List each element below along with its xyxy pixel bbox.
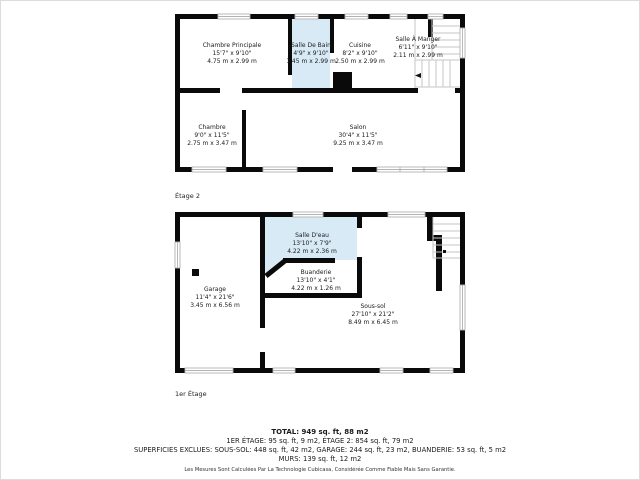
summary-block: TOTAL: 949 sq. ft, 88 m2 1ER ÉTAGE: 95 s… bbox=[134, 428, 506, 473]
label-salon-imperial: 30'4" x 11'5" bbox=[338, 132, 377, 139]
label-salle-deau-metric: 4.22 m x 2.36 m bbox=[287, 248, 337, 255]
staircase-1er-etage bbox=[433, 217, 460, 258]
window bbox=[192, 167, 226, 172]
floor2-label: Étage 2 bbox=[175, 191, 200, 200]
label-garage-imperial: 11'4" x 21'6" bbox=[195, 294, 234, 301]
label-cuisine-name: Cuisine bbox=[349, 42, 371, 49]
window bbox=[388, 212, 425, 217]
label-salle-a-manger-name: Salle À Manger bbox=[395, 36, 441, 43]
label-cuisine-imperial: 8'2" x 9'10" bbox=[342, 50, 378, 57]
label-chambre-principale-imperial: 15'7" x 9'10" bbox=[212, 50, 251, 57]
garage-door bbox=[185, 368, 233, 373]
stair-direction-arrow bbox=[415, 73, 421, 78]
label-buanderie-name: Buanderie bbox=[301, 269, 332, 276]
window bbox=[390, 14, 407, 19]
label-salle-de-bain-name: Salle De Bain bbox=[291, 42, 331, 49]
label-sous-sol-name: Sous-sol bbox=[360, 303, 385, 310]
plan-etage2: Chambre Principale 15'7" x 9'10" 4.75 m … bbox=[175, 14, 465, 200]
summary-murs: MURS: 139 sq. ft, 12 m2 bbox=[279, 455, 362, 463]
window bbox=[263, 167, 297, 172]
window bbox=[428, 14, 443, 19]
window bbox=[218, 14, 250, 19]
label-chambre-name: Chambre bbox=[198, 124, 226, 131]
window bbox=[295, 14, 318, 19]
label-salle-a-manger-imperial: 6'11" x 9'10" bbox=[398, 44, 437, 51]
window bbox=[380, 368, 403, 373]
label-salle-deau-imperial: 13'10" x 7'9" bbox=[292, 240, 331, 247]
label-chambre-principale-name: Chambre Principale bbox=[203, 42, 262, 49]
floorplan-canvas: Chambre Principale 15'7" x 9'10" 4.75 m … bbox=[0, 0, 640, 480]
door-opening bbox=[333, 167, 352, 172]
summary-total: TOTAL: 949 sq. ft, 88 m2 bbox=[271, 428, 368, 436]
floor1-label: 1er Étage bbox=[175, 389, 207, 398]
window bbox=[460, 285, 465, 330]
summary-etages: 1ER ÉTAGE: 95 sq. ft, 9 m2, ÉTAGE 2: 854… bbox=[226, 436, 413, 445]
label-garage-name: Garage bbox=[204, 286, 226, 293]
labels-1er-etage: Salle D'eau 13'10" x 7'9" 4.22 m x 2.36 … bbox=[190, 232, 398, 326]
label-sous-sol-imperial: 27'10" x 21'2" bbox=[352, 311, 395, 318]
label-buanderie-metric: 4.22 m x 1.26 m bbox=[291, 285, 341, 292]
window bbox=[430, 368, 453, 373]
window bbox=[175, 242, 180, 268]
label-chambre-metric: 2.75 m x 3.47 m bbox=[187, 140, 237, 147]
window bbox=[273, 368, 295, 373]
label-salle-de-bain-imperial: 4'9" x 9'10" bbox=[293, 50, 329, 57]
window bbox=[377, 167, 447, 172]
window bbox=[293, 212, 323, 217]
label-garage-metric: 3.45 m x 6.56 m bbox=[190, 302, 240, 309]
window bbox=[460, 28, 465, 58]
label-chambre-imperial: 9'0" x 11'5" bbox=[194, 132, 230, 139]
label-cuisine-metric: 2.50 m x 2.99 m bbox=[335, 58, 385, 65]
plan-1er-etage: Salle D'eau 13'10" x 7'9" 4.22 m x 2.36 … bbox=[175, 212, 465, 398]
label-salle-de-bain-metric: 1.45 m x 2.99 m bbox=[286, 58, 336, 65]
label-salle-a-manger-metric: 2.11 m x 2.99 m bbox=[393, 52, 443, 59]
label-sous-sol-metric: 8.49 m x 6.45 m bbox=[348, 319, 398, 326]
label-salon-name: Salon bbox=[350, 124, 367, 131]
floorplan-page: Chambre Principale 15'7" x 9'10" 4.75 m … bbox=[0, 0, 640, 480]
label-buanderie-imperial: 13'10" x 4'1" bbox=[296, 277, 335, 284]
label-salon-metric: 9.25 m x 3.47 m bbox=[333, 140, 383, 147]
stair-direction-marker bbox=[443, 250, 446, 253]
label-chambre-principale-metric: 4.75 m x 2.99 m bbox=[207, 58, 257, 65]
label-salle-deau-name: Salle D'eau bbox=[295, 232, 329, 239]
summary-exclusions: SUPERFICIES EXCLUES: SOUS-SOL: 448 sq. f… bbox=[134, 446, 506, 454]
disclaimer-text: Les Mesures Sont Calculées Par La Techno… bbox=[184, 466, 456, 473]
window bbox=[345, 14, 368, 19]
